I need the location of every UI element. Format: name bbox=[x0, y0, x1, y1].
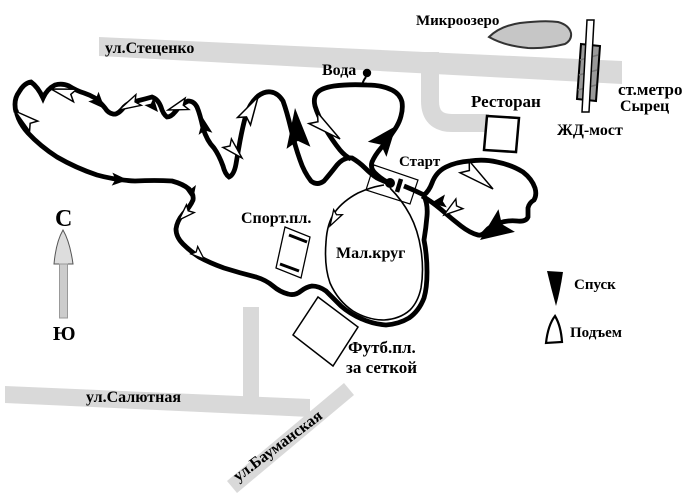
svg-text:за сеткой: за сеткой bbox=[346, 358, 417, 377]
svg-text:Микроозеро: Микроозеро bbox=[416, 13, 499, 29]
svg-text:С: С bbox=[55, 206, 72, 232]
svg-text:Сырец: Сырец bbox=[620, 98, 669, 115]
svg-text:Спуск: Спуск bbox=[574, 277, 616, 293]
svg-text:Мал.круг: Мал.круг bbox=[336, 245, 405, 262]
svg-text:ст.метро: ст.метро bbox=[618, 80, 683, 99]
svg-text:Вода: Вода bbox=[322, 62, 356, 79]
svg-text:ул.Салютная: ул.Салютная bbox=[86, 389, 181, 406]
svg-text:Футб.пл.: Футб.пл. bbox=[348, 338, 416, 357]
svg-text:Старт: Старт bbox=[399, 154, 441, 170]
svg-text:ул.Бауманская: ул.Бауманская bbox=[230, 407, 326, 485]
svg-text:Ю: Ю bbox=[53, 323, 76, 345]
svg-text:ЖД-мост: ЖД-мост bbox=[557, 122, 623, 139]
svg-text:ул.Стеценко: ул.Стеценко bbox=[105, 40, 194, 57]
svg-text:Подъем: Подъем bbox=[570, 325, 622, 341]
svg-text:Ресторан: Ресторан bbox=[471, 92, 541, 111]
svg-text:Спорт.пл.: Спорт.пл. bbox=[241, 210, 311, 227]
